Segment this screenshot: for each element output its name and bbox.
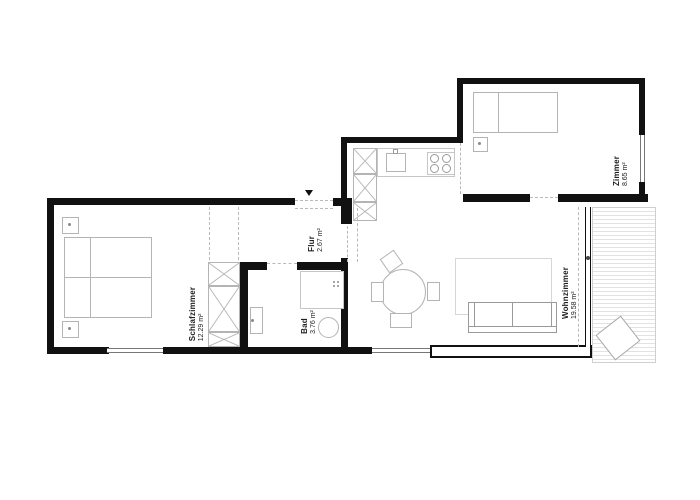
room-label-flur: Flur 2.67 m²	[307, 228, 325, 252]
dining-table	[380, 269, 426, 315]
bed-divider-line	[64, 277, 152, 278]
shower-drain-dot	[333, 281, 335, 283]
room-name: Schlafzimmer	[188, 287, 198, 341]
wall-segment	[47, 198, 295, 205]
wc-dot	[251, 319, 254, 322]
room-area: 3.76 m²	[310, 310, 318, 334]
room-boundary-dash	[238, 207, 239, 260]
burner	[442, 164, 451, 173]
faucet-icon	[393, 149, 398, 154]
entrance-door-opening	[295, 200, 333, 201]
room-area: 8.65 m²	[622, 156, 630, 186]
wall-segment	[240, 262, 267, 270]
wall-segment	[163, 347, 350, 354]
pillow-line	[90, 237, 91, 318]
wall-segment	[558, 194, 648, 202]
sofa-armrest-line	[474, 302, 475, 326]
kitchen-cabinet	[353, 174, 377, 202]
entrance-door-opening	[295, 208, 333, 209]
bathroom-door-opening	[267, 263, 297, 264]
wall-segment	[457, 78, 463, 142]
room-label-schlafzimmer: Schlafzimmer 12.29 m²	[188, 287, 206, 341]
wall-segment	[341, 137, 463, 143]
glass-wall	[430, 345, 592, 358]
wall-segment	[341, 137, 347, 198]
door-handle-dot	[586, 256, 590, 260]
shower-drain-dot	[337, 285, 339, 287]
room-name: Wohnzimmer	[561, 267, 571, 319]
room-door-opening	[530, 197, 558, 198]
lamp-dot	[68, 327, 71, 330]
shower-drain-dot	[333, 285, 335, 287]
wardrobe	[208, 262, 240, 286]
room-name: Flur	[307, 228, 317, 252]
floor-plan: Schlafzimmer 12.29 m² Bad 3.76 m² Flur 2…	[0, 0, 700, 500]
pillow-line	[498, 92, 499, 133]
wall-segment	[463, 194, 530, 202]
window	[640, 135, 645, 182]
wardrobe	[208, 332, 240, 347]
kitchen-cabinet	[353, 202, 377, 221]
washbasin	[318, 317, 339, 338]
wall-segment	[47, 347, 109, 354]
kitchen-cabinet	[353, 148, 377, 174]
wardrobe	[208, 286, 240, 332]
dining-chair	[427, 282, 440, 301]
room-boundary-dash	[209, 207, 210, 260]
dining-chair	[371, 282, 384, 302]
room-label-bad: Bad 3.76 m²	[300, 310, 318, 334]
glass-door	[585, 207, 591, 347]
room-area: 19.58 m²	[571, 267, 579, 319]
wall-segment	[47, 198, 54, 354]
single-bed	[473, 92, 558, 133]
lamp-dot	[478, 142, 481, 145]
entrance-arrow-icon	[305, 190, 313, 196]
room-name: Bad	[300, 310, 310, 334]
shower	[300, 271, 344, 309]
window	[107, 348, 163, 353]
sofa-cushion-line	[512, 302, 513, 326]
burner	[430, 164, 439, 173]
wall-segment	[240, 262, 248, 354]
sofa-armrest-line	[551, 302, 552, 326]
room-area: 2.67 m²	[317, 228, 325, 252]
wall-segment	[341, 198, 352, 224]
room-name: Zimmer	[612, 156, 622, 186]
wall-segment	[350, 347, 372, 354]
shower-drain-dot	[337, 281, 339, 283]
lamp-dot	[68, 223, 71, 226]
room-label-zimmer: Zimmer 8.65 m²	[612, 156, 630, 186]
room-label-wohnzimmer: Wohnzimmer 19.58 m²	[561, 267, 579, 319]
kitchen-sink	[386, 153, 406, 172]
window	[372, 348, 430, 353]
wall-segment	[457, 78, 645, 84]
dining-chair	[390, 313, 412, 328]
burner	[442, 154, 451, 163]
room-area: 12.29 m²	[198, 287, 206, 341]
room-boundary-dash	[347, 226, 348, 262]
room-boundary-dash	[460, 143, 461, 194]
burner	[430, 154, 439, 163]
sofa-back-line	[468, 326, 557, 327]
wall-segment	[639, 78, 645, 135]
